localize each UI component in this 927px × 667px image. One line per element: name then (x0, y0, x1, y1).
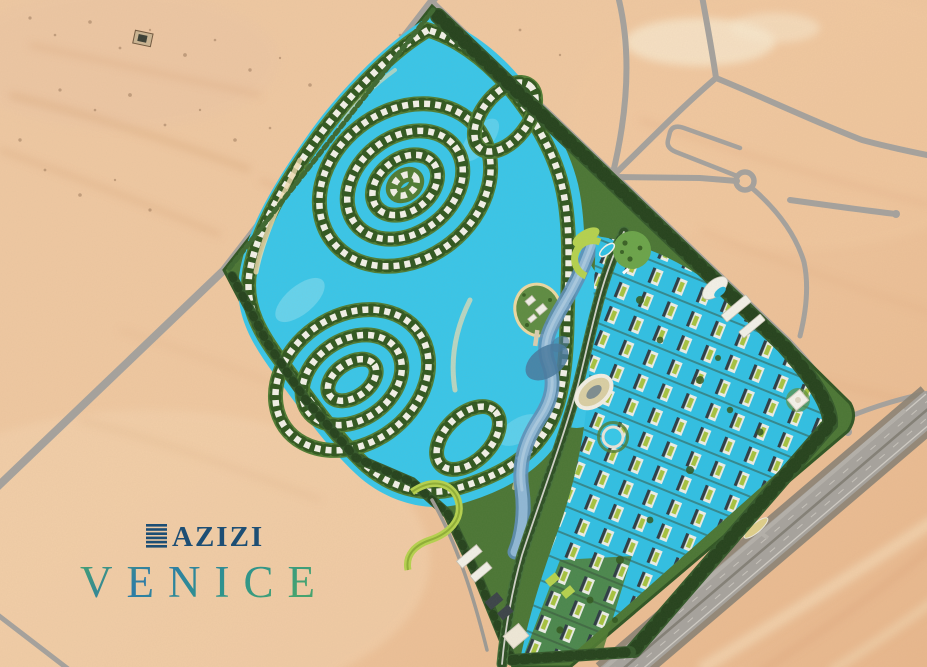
project-wordmark: VENICE (80, 557, 329, 607)
masterplan-render: AZIZI VENICE (0, 0, 927, 667)
masterplan-screenshot: AZIZI VENICE (0, 0, 927, 667)
brand-wordmark: AZIZI (172, 521, 264, 553)
